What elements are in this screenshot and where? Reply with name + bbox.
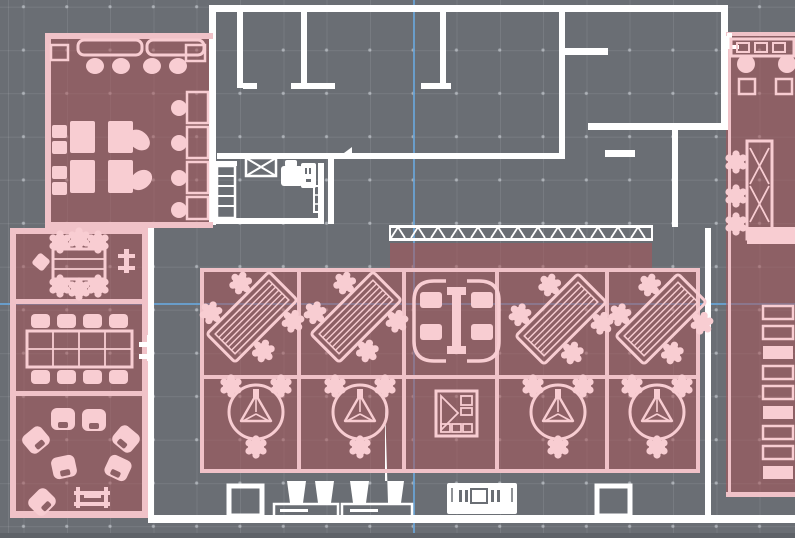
meeting-room-large[interactable] (27, 314, 153, 384)
open-office-partitions (200, 268, 700, 473)
wall-booths (171, 92, 208, 219)
desk-cluster-1[interactable] (190, 255, 314, 379)
structural-column (229, 486, 262, 516)
desk-cluster-2[interactable] (294, 255, 418, 379)
desk-cluster-3[interactable] (499, 257, 623, 381)
bar-table (78, 40, 142, 55)
shelf-rack (215, 161, 237, 166)
bar-table (147, 40, 204, 55)
cafe-table-group (52, 121, 156, 195)
lounge[interactable] (20, 408, 143, 518)
team-pod-4[interactable] (621, 374, 692, 458)
right-column-rooms[interactable] (725, 32, 795, 497)
side-table (51, 45, 68, 60)
canvas-bottom-edge (0, 533, 795, 538)
open-office[interactable] (190, 255, 723, 473)
coffee-bench (74, 487, 110, 508)
wall-shelving-units (763, 306, 793, 479)
structural-column (597, 486, 630, 516)
team-pod-2[interactable] (324, 374, 395, 458)
team-pod-3[interactable] (522, 374, 593, 458)
waste-bin (350, 481, 369, 503)
desk-cluster-4[interactable] (599, 257, 723, 381)
waste-bin (385, 404, 404, 503)
floorplan-canvas[interactable] (0, 0, 795, 538)
floorplan-stage (0, 0, 795, 538)
copier-icon (281, 160, 316, 188)
service-table (447, 483, 517, 514)
meeting-room-small[interactable] (31, 227, 135, 300)
break-room[interactable] (45, 33, 213, 228)
plan-drawing (0, 0, 795, 538)
right-break-room[interactable] (731, 39, 795, 94)
bar-stools (86, 58, 187, 74)
waste-bin (287, 481, 306, 503)
copy-room-furniture[interactable] (215, 158, 323, 218)
left-column-rooms[interactable] (10, 227, 153, 518)
meeting-pod[interactable] (414, 281, 499, 361)
storage-cabinet[interactable] (436, 391, 477, 436)
waste-bin (315, 481, 334, 503)
team-pod-1[interactable] (220, 374, 291, 458)
locker-row[interactable] (390, 225, 652, 241)
right-desk-room[interactable] (725, 141, 795, 479)
